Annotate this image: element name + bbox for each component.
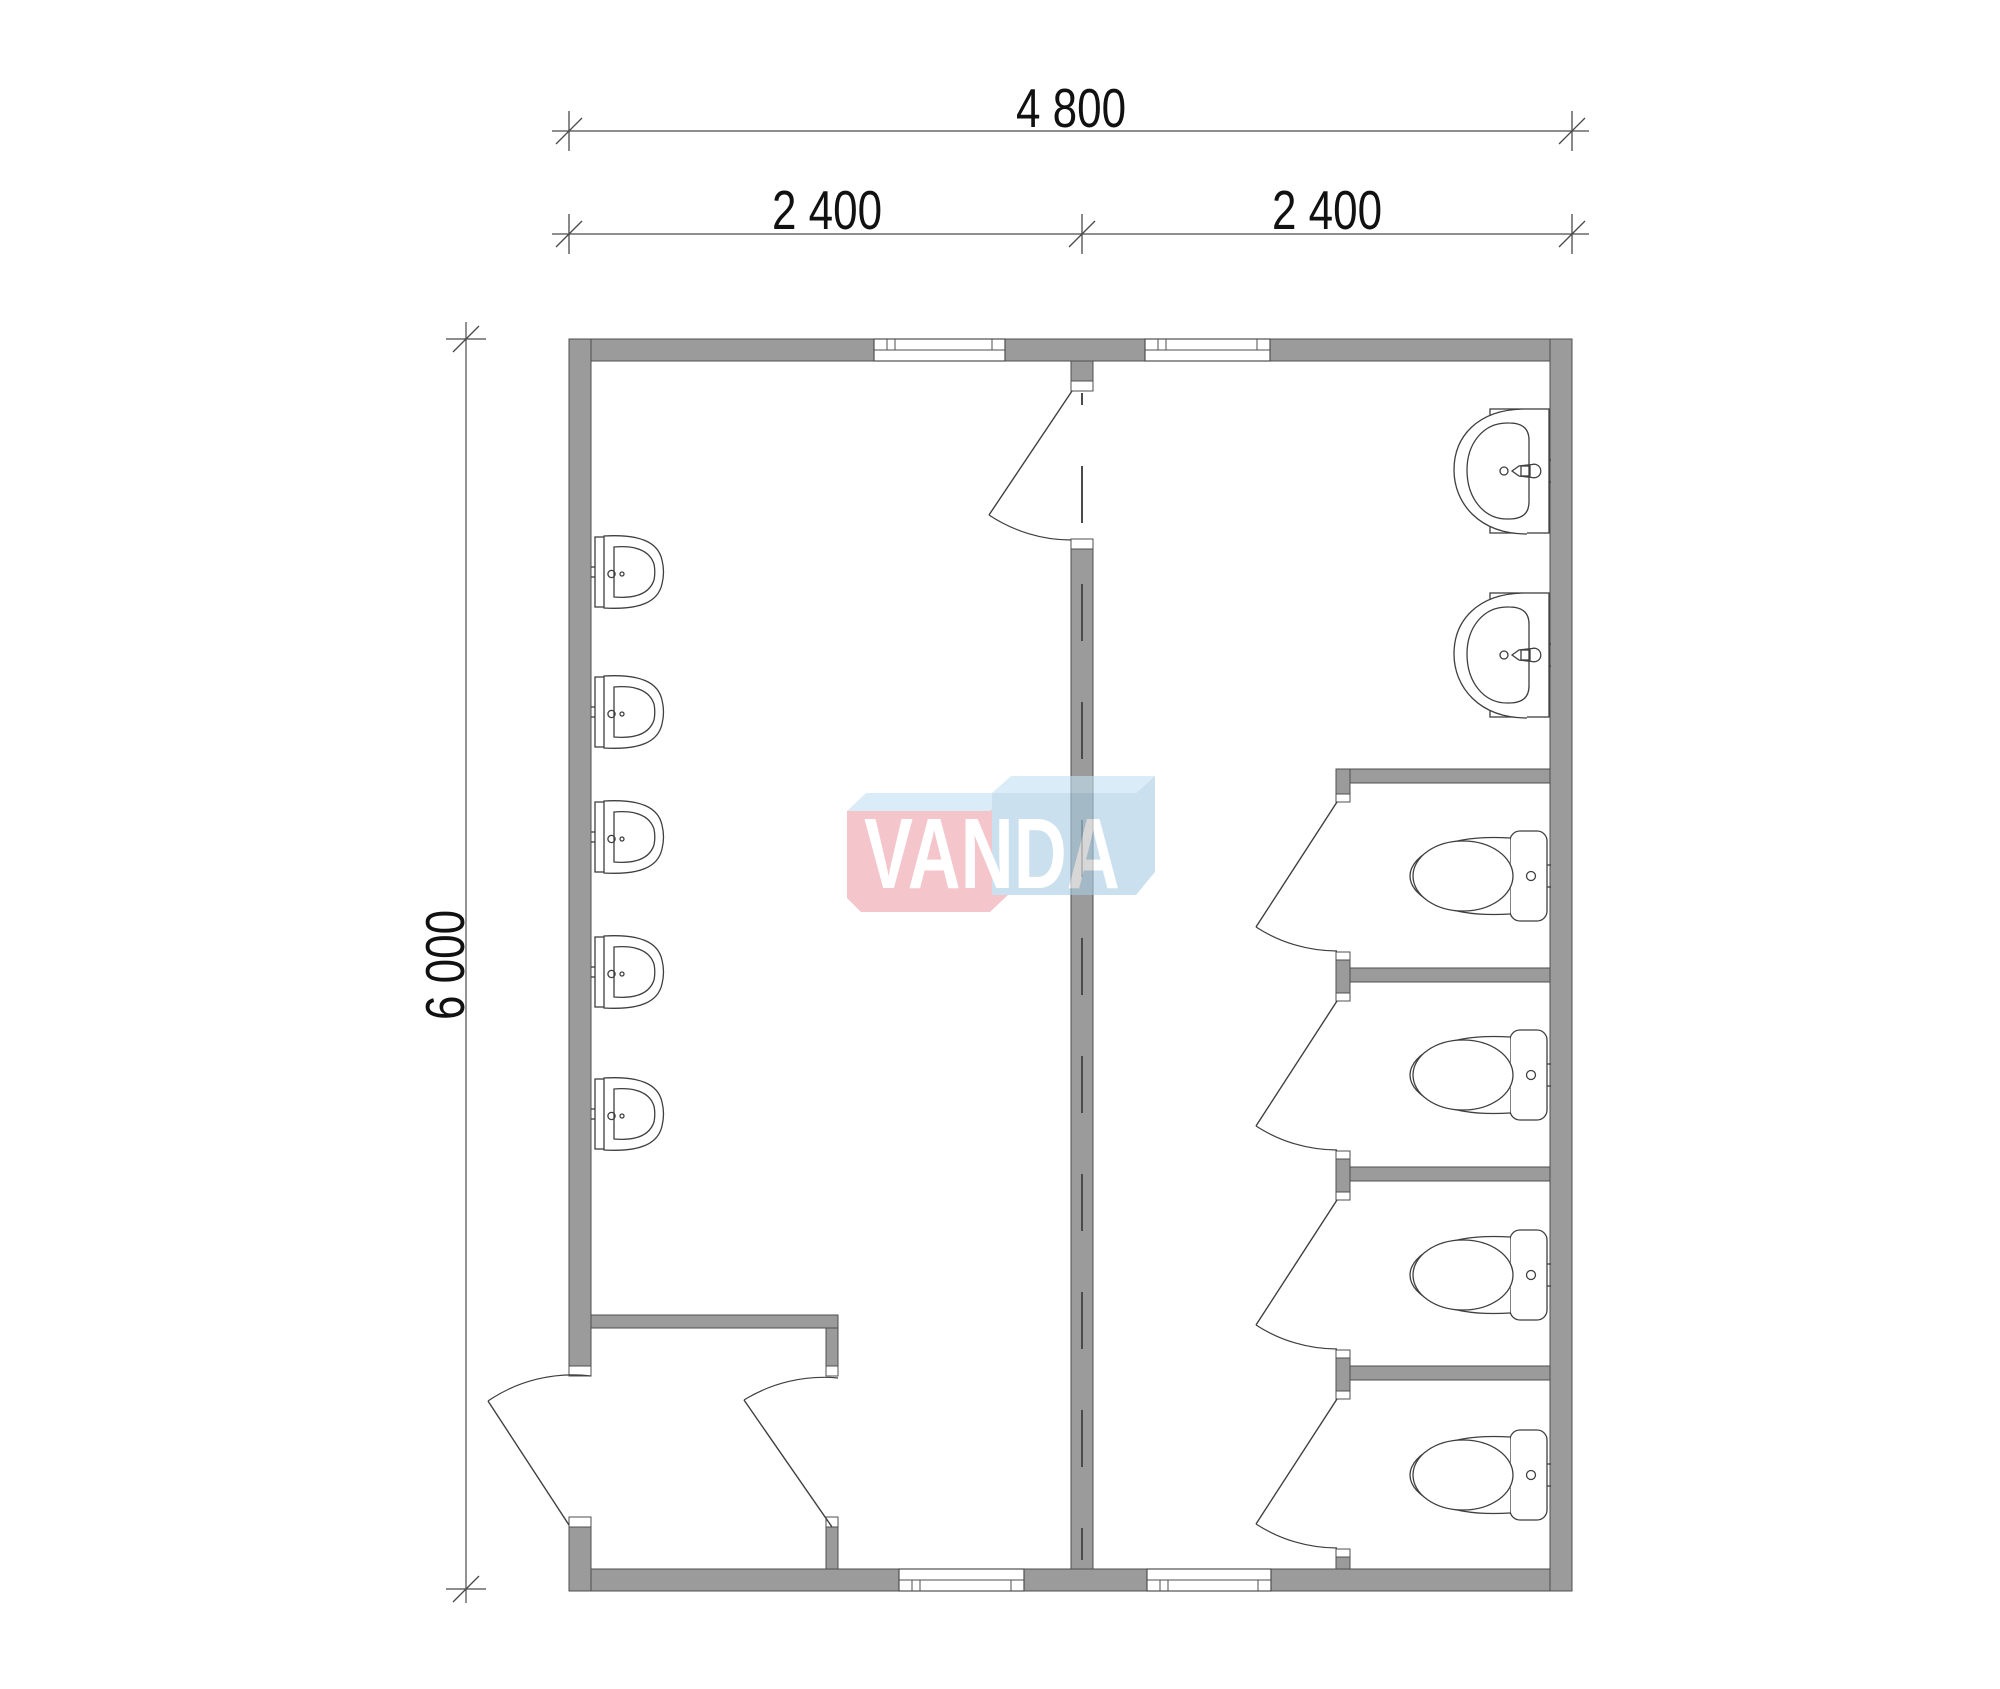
svg-text:VANDA: VANDA [864,798,1120,910]
svg-text:4 800: 4 800 [1016,77,1126,139]
svg-text:6 000: 6 000 [414,910,476,1020]
svg-text:2 400: 2 400 [1272,179,1382,241]
svg-text:2 400: 2 400 [772,179,882,241]
